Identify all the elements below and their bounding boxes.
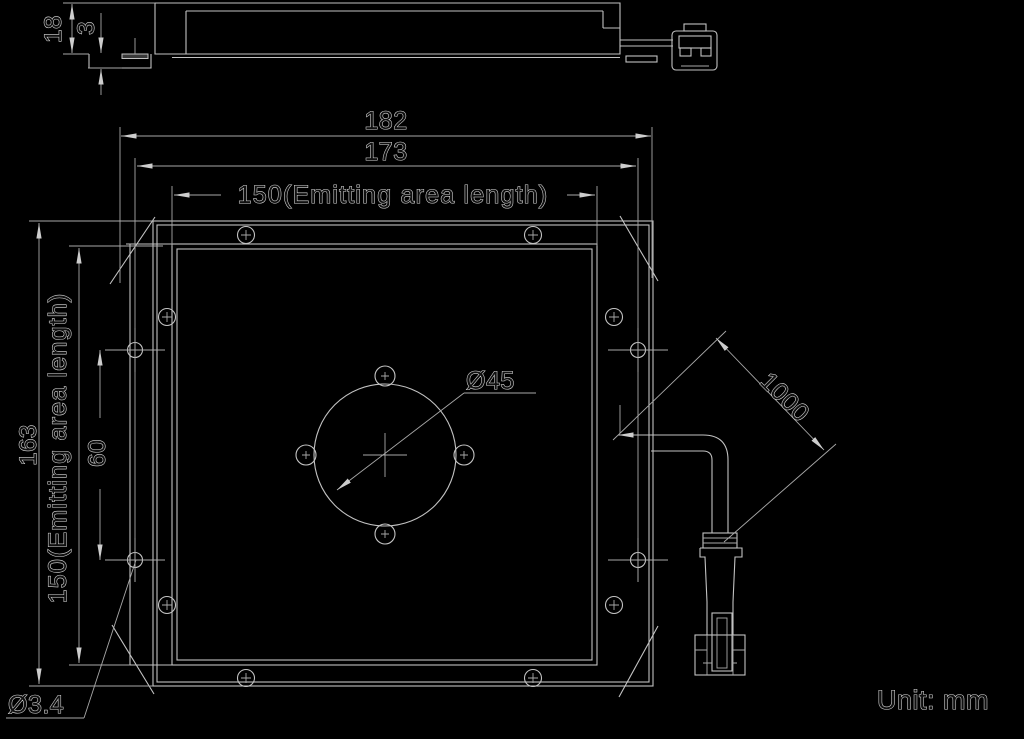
mounting-holes — [105, 158, 668, 582]
mounting-hole-diameter-label: Ø3.4 — [8, 691, 64, 719]
center-crosshair-icon — [363, 433, 407, 477]
overall-height-label: 163 — [15, 424, 42, 466]
thickness-label: 18 — [40, 15, 67, 43]
mounting-pitch-width-label: 173 — [364, 138, 407, 166]
screw-hole-icon — [606, 309, 623, 326]
plan-outline — [110, 216, 658, 697]
frame-screw-holes — [159, 227, 623, 687]
corner-marks — [110, 216, 658, 697]
left-hole-pitch-label: 60 — [84, 439, 111, 467]
technical-drawing-canvas: 18 3 — [0, 0, 1024, 739]
dim-mounting-pitch-width: 173 — [137, 138, 636, 166]
mounting-hole-icon — [105, 328, 165, 372]
cable-assembly: 1000 — [613, 331, 836, 675]
cable-tie — [626, 56, 657, 62]
side-view-outline — [89, 3, 620, 68]
screw-hole-icon — [159, 597, 176, 614]
center-hole — [296, 366, 474, 544]
rim-hole-icon — [454, 445, 474, 465]
unit-note: Unit: mm — [877, 685, 989, 715]
screw-hole-icon — [525, 227, 542, 244]
mounting-hole-icon — [608, 538, 668, 582]
center-hole-diameter-label: Ø45 — [466, 367, 515, 395]
mounting-hole-icon — [105, 538, 165, 582]
screw-hole-icon — [159, 309, 176, 326]
side-gasket-bar — [122, 54, 148, 59]
edge-step-label: 3 — [73, 21, 100, 35]
rim-hole-icon — [296, 445, 316, 465]
side-view: 18 3 — [40, 3, 717, 95]
dim-left-hole-pitch: 60 — [84, 350, 111, 560]
rim-hole-icon — [375, 524, 395, 544]
emitting-height-label: 150(Emitting area length) — [44, 293, 72, 604]
mounting-hole-icon — [608, 328, 668, 372]
dim-cable-length: 1000 — [613, 331, 836, 542]
screw-hole-icon — [525, 670, 542, 687]
screw-hole-icon — [238, 227, 255, 244]
side-cable — [620, 40, 673, 62]
center-hole-callout: Ø45 — [337, 367, 536, 490]
side-connector — [672, 24, 717, 70]
rim-hole-icon — [375, 366, 395, 386]
emitting-area-outline — [172, 244, 597, 665]
cable-connector — [695, 533, 745, 675]
screw-hole-icon — [238, 670, 255, 687]
overall-width-label: 182 — [364, 107, 407, 135]
cable-length-label: 1000 — [754, 367, 815, 428]
emitting-width-label: 150(Emitting area length) — [238, 181, 549, 209]
screw-hole-icon — [606, 597, 623, 614]
dimension-drawing: 18 3 — [0, 0, 1024, 739]
plan-view: Ø45 Ø3.4 182 173 150(Emitting area lengt… — [6, 107, 668, 719]
